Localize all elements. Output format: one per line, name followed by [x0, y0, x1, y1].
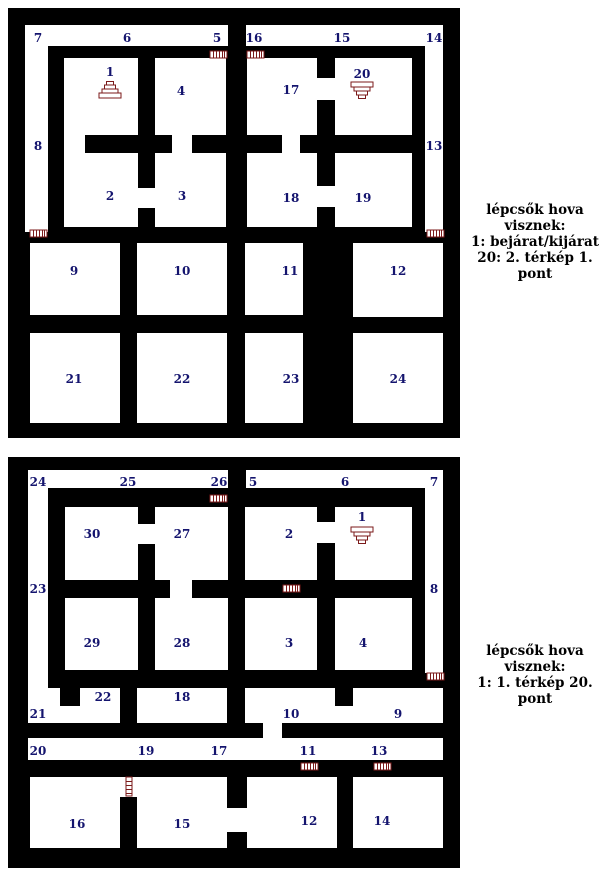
room-label: 21	[30, 707, 47, 721]
room-label: 27	[174, 527, 191, 541]
room-floor	[247, 777, 337, 848]
room-label: 15	[334, 31, 351, 45]
room-label: 24	[30, 475, 47, 489]
room-label: 2	[285, 527, 293, 541]
door-icon	[210, 495, 227, 502]
room-floor	[155, 58, 226, 135]
room-label: 23	[283, 372, 300, 386]
room-label: 17	[283, 83, 300, 97]
room-label: 1	[106, 65, 114, 79]
room-floor	[353, 777, 443, 848]
door-gap	[227, 808, 247, 832]
room-label: 25	[120, 475, 137, 489]
room-label: 11	[282, 264, 299, 278]
room-label: 28	[174, 636, 191, 650]
room-floor	[335, 58, 412, 135]
room-label: 10	[174, 264, 191, 278]
room-label: 13	[371, 744, 388, 758]
door-icon	[374, 763, 391, 770]
room-floor	[245, 507, 317, 580]
door-gap	[282, 135, 300, 153]
room-label: 17	[211, 744, 228, 758]
room-label: 30	[84, 527, 101, 541]
room-floor	[137, 777, 227, 848]
door-icon	[126, 777, 132, 796]
room-label: 22	[174, 372, 191, 386]
room-label: 14	[426, 31, 443, 45]
room-label: 19	[355, 191, 372, 205]
room-label: 24	[390, 372, 407, 386]
room-label: 14	[374, 814, 391, 828]
room-label: 6	[341, 475, 349, 489]
door-gap	[263, 723, 282, 738]
room-label: 23	[30, 582, 47, 596]
room-label: 5	[249, 475, 257, 489]
door-gap	[172, 135, 192, 153]
room-floor	[247, 153, 317, 227]
room-floor	[335, 153, 412, 227]
door-icon	[301, 763, 318, 770]
room-label: 7	[34, 31, 42, 45]
door-gap	[170, 580, 192, 598]
room-label: 19	[138, 744, 155, 758]
room-label: 11	[300, 744, 317, 758]
room-label: 18	[174, 690, 191, 704]
legend-title: lépcsők hova visznek:	[462, 202, 608, 234]
door-icon	[247, 51, 264, 58]
map2-legend: lépcsők hova visznek: 1: 1. térkép 20. p…	[462, 643, 608, 707]
door-gap	[138, 188, 155, 208]
room-label: 20	[30, 744, 47, 758]
door-icon	[427, 230, 444, 237]
room-floor	[30, 243, 120, 315]
wall-stub	[335, 688, 353, 706]
door-gap	[138, 524, 155, 544]
corridor-floor	[25, 25, 48, 232]
room-floor	[245, 598, 317, 670]
room-label: 22	[95, 690, 112, 704]
dungeon-map-1: 7 6 5 16 15 14 8 13 1 4 17 20 2 3 18 19 …	[8, 8, 460, 438]
room-floor	[335, 598, 412, 670]
door-icon	[210, 51, 227, 58]
room-label: 4	[177, 84, 185, 98]
room-label: 2	[106, 189, 114, 203]
door-icon	[30, 230, 47, 237]
door-gap	[64, 135, 85, 153]
room-label: 12	[390, 264, 407, 278]
room-floor	[245, 243, 303, 315]
room-label: 8	[34, 139, 42, 153]
door-icon	[427, 673, 444, 680]
room-label: 13	[426, 139, 443, 153]
door-gap	[317, 522, 335, 543]
room-floor	[137, 243, 227, 315]
legend-entry: 1: 1. térkép 20. pont	[462, 675, 608, 707]
room-label: 7	[430, 475, 438, 489]
room-floor	[30, 777, 120, 848]
room-label: 9	[394, 707, 402, 721]
door-gap	[317, 78, 335, 100]
map1-legend: lépcsők hova visznek: 1: bejárat/kijárat…	[462, 202, 608, 282]
room-label: 12	[301, 814, 318, 828]
room-floor	[155, 507, 228, 580]
room-floor	[65, 598, 138, 670]
room-floor	[353, 243, 443, 317]
room-label: 21	[66, 372, 83, 386]
room-label: 1	[358, 510, 366, 524]
room-label: 18	[283, 191, 300, 205]
corridor-floor	[425, 25, 443, 232]
legend-entry: 20: 2. térkép 1. pont	[462, 250, 608, 282]
room-floor	[155, 153, 226, 227]
room-label: 8	[430, 582, 438, 596]
room-label: 10	[283, 707, 300, 721]
room-label: 20	[354, 67, 371, 81]
legend-entry: 1: bejárat/kijárat	[462, 234, 608, 250]
room-label: 3	[285, 636, 293, 650]
room-label: 16	[69, 817, 86, 831]
door-gap	[317, 186, 335, 207]
room-label: 4	[359, 636, 367, 650]
room-floor	[155, 598, 228, 670]
room-label: 15	[174, 817, 191, 831]
room-label: 5	[213, 31, 221, 45]
room-floor	[64, 153, 138, 227]
room-label: 6	[123, 31, 131, 45]
dungeon-map-2: 24 25 26 5 6 7 23 8 30 27 2 1 29 28 3 4 …	[8, 457, 460, 868]
room-label: 16	[246, 31, 263, 45]
room-label: 9	[70, 264, 78, 278]
room-label: 3	[178, 189, 186, 203]
wall-stub	[60, 688, 80, 706]
room-label: 29	[84, 636, 101, 650]
page: 7 6 5 16 15 14 8 13 1 4 17 20 2 3 18 19 …	[0, 0, 608, 880]
door-icon	[283, 585, 300, 592]
room-floor	[65, 507, 138, 580]
room-label: 26	[211, 475, 228, 489]
legend-title: lépcsők hova visznek:	[462, 643, 608, 675]
corridor-floor	[425, 470, 443, 673]
room-floor	[335, 507, 412, 580]
